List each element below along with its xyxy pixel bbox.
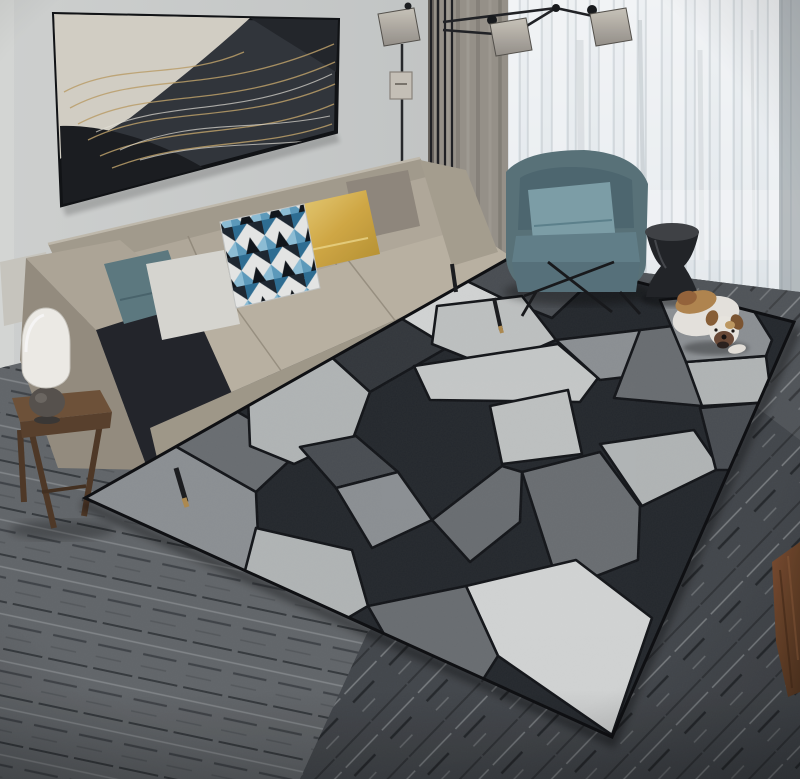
living-room-photo (0, 0, 800, 779)
cool-cast (0, 0, 800, 779)
scene-canvas (0, 0, 800, 779)
